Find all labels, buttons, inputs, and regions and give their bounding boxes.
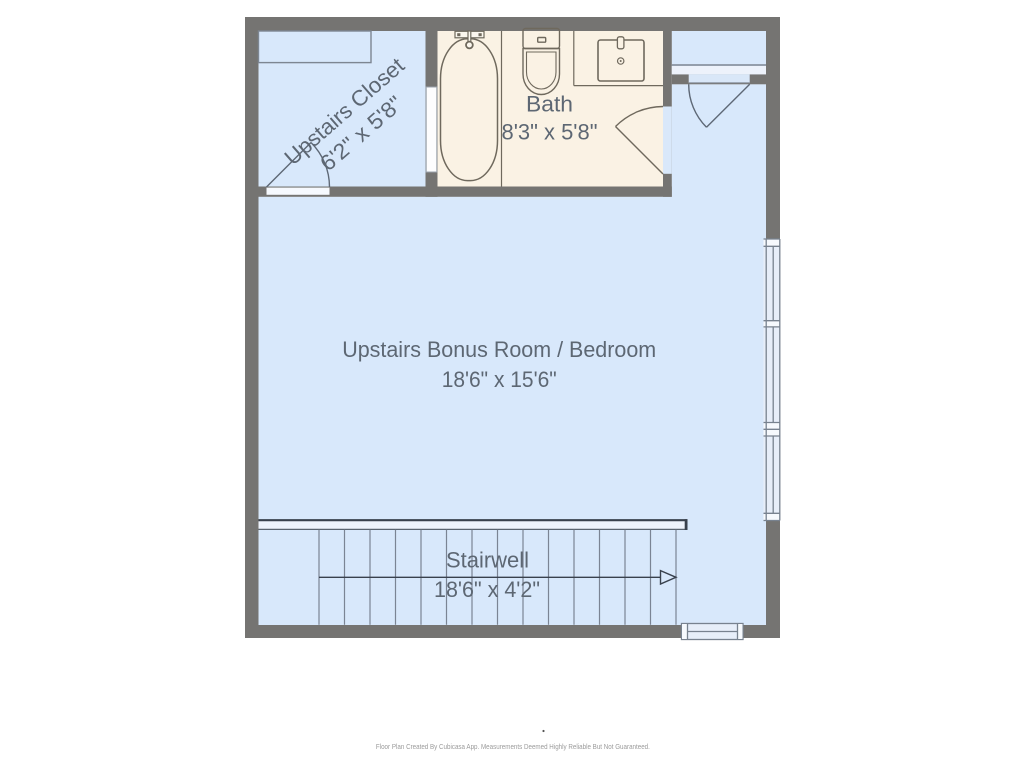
- svg-text:Stairwell: Stairwell: [446, 548, 529, 573]
- svg-text:Upstairs Bonus Room / Bedroom: Upstairs Bonus Room / Bedroom: [342, 337, 656, 362]
- svg-text:Bath: Bath: [526, 92, 573, 117]
- svg-text:18'6" x 15'6": 18'6" x 15'6": [442, 367, 557, 392]
- svg-text:Floor Plan Created By Cubicasa: Floor Plan Created By Cubicasa App. Meas…: [376, 742, 650, 751]
- svg-text:18'6" x 4'2": 18'6" x 4'2": [434, 577, 540, 602]
- svg-text:8'3" x 5'8": 8'3" x 5'8": [502, 120, 598, 145]
